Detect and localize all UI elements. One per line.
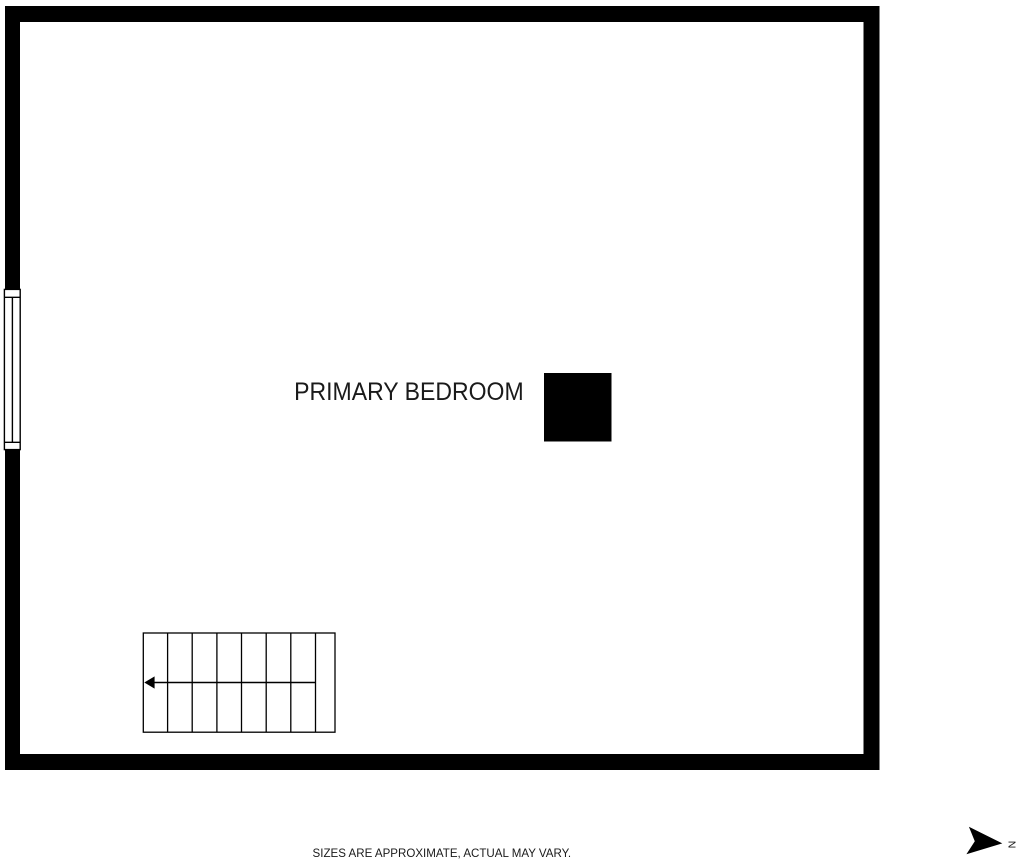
- svg-text:N: N: [1005, 841, 1017, 849]
- svg-text:PRIMARY BEDROOM: PRIMARY BEDROOM: [294, 379, 524, 406]
- svg-text:SIZES ARE APPROXIMATE, ACTUAL: SIZES ARE APPROXIMATE, ACTUAL MAY VARY.: [313, 846, 572, 860]
